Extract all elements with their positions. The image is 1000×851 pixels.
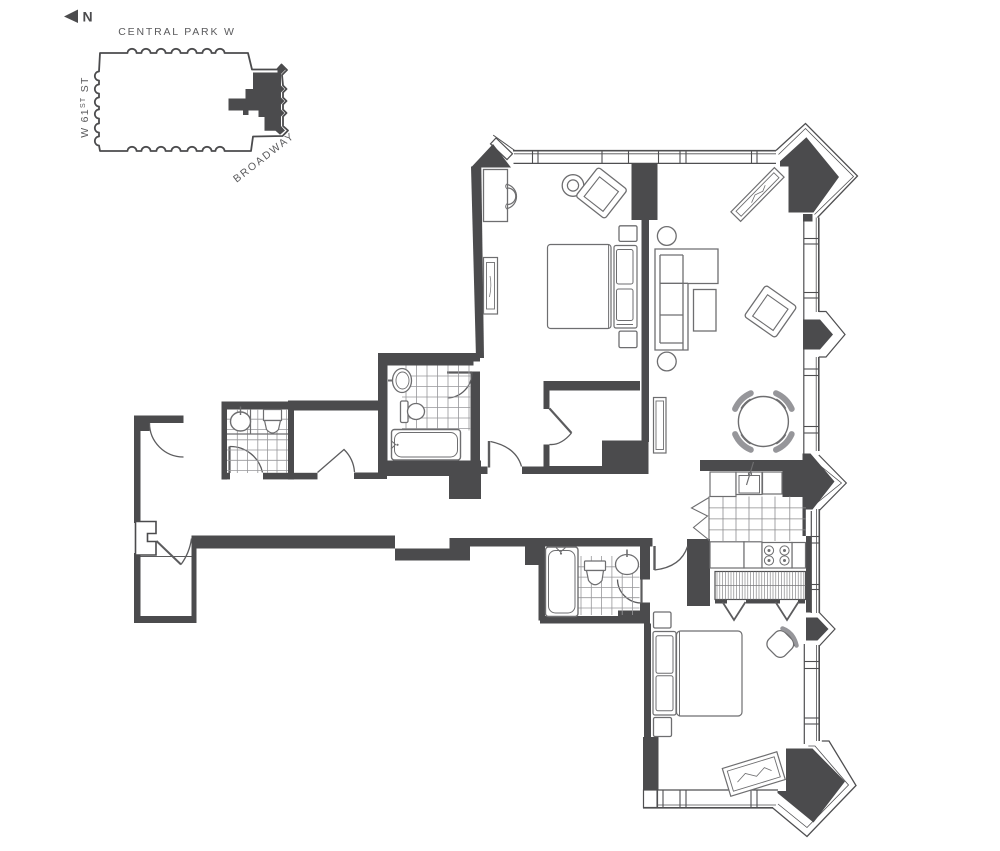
svg-text:W 61ST ST: W 61ST ST xyxy=(79,76,91,138)
svg-text:N: N xyxy=(83,9,93,25)
svg-text:CENTRAL PARK W: CENTRAL PARK W xyxy=(118,26,235,38)
